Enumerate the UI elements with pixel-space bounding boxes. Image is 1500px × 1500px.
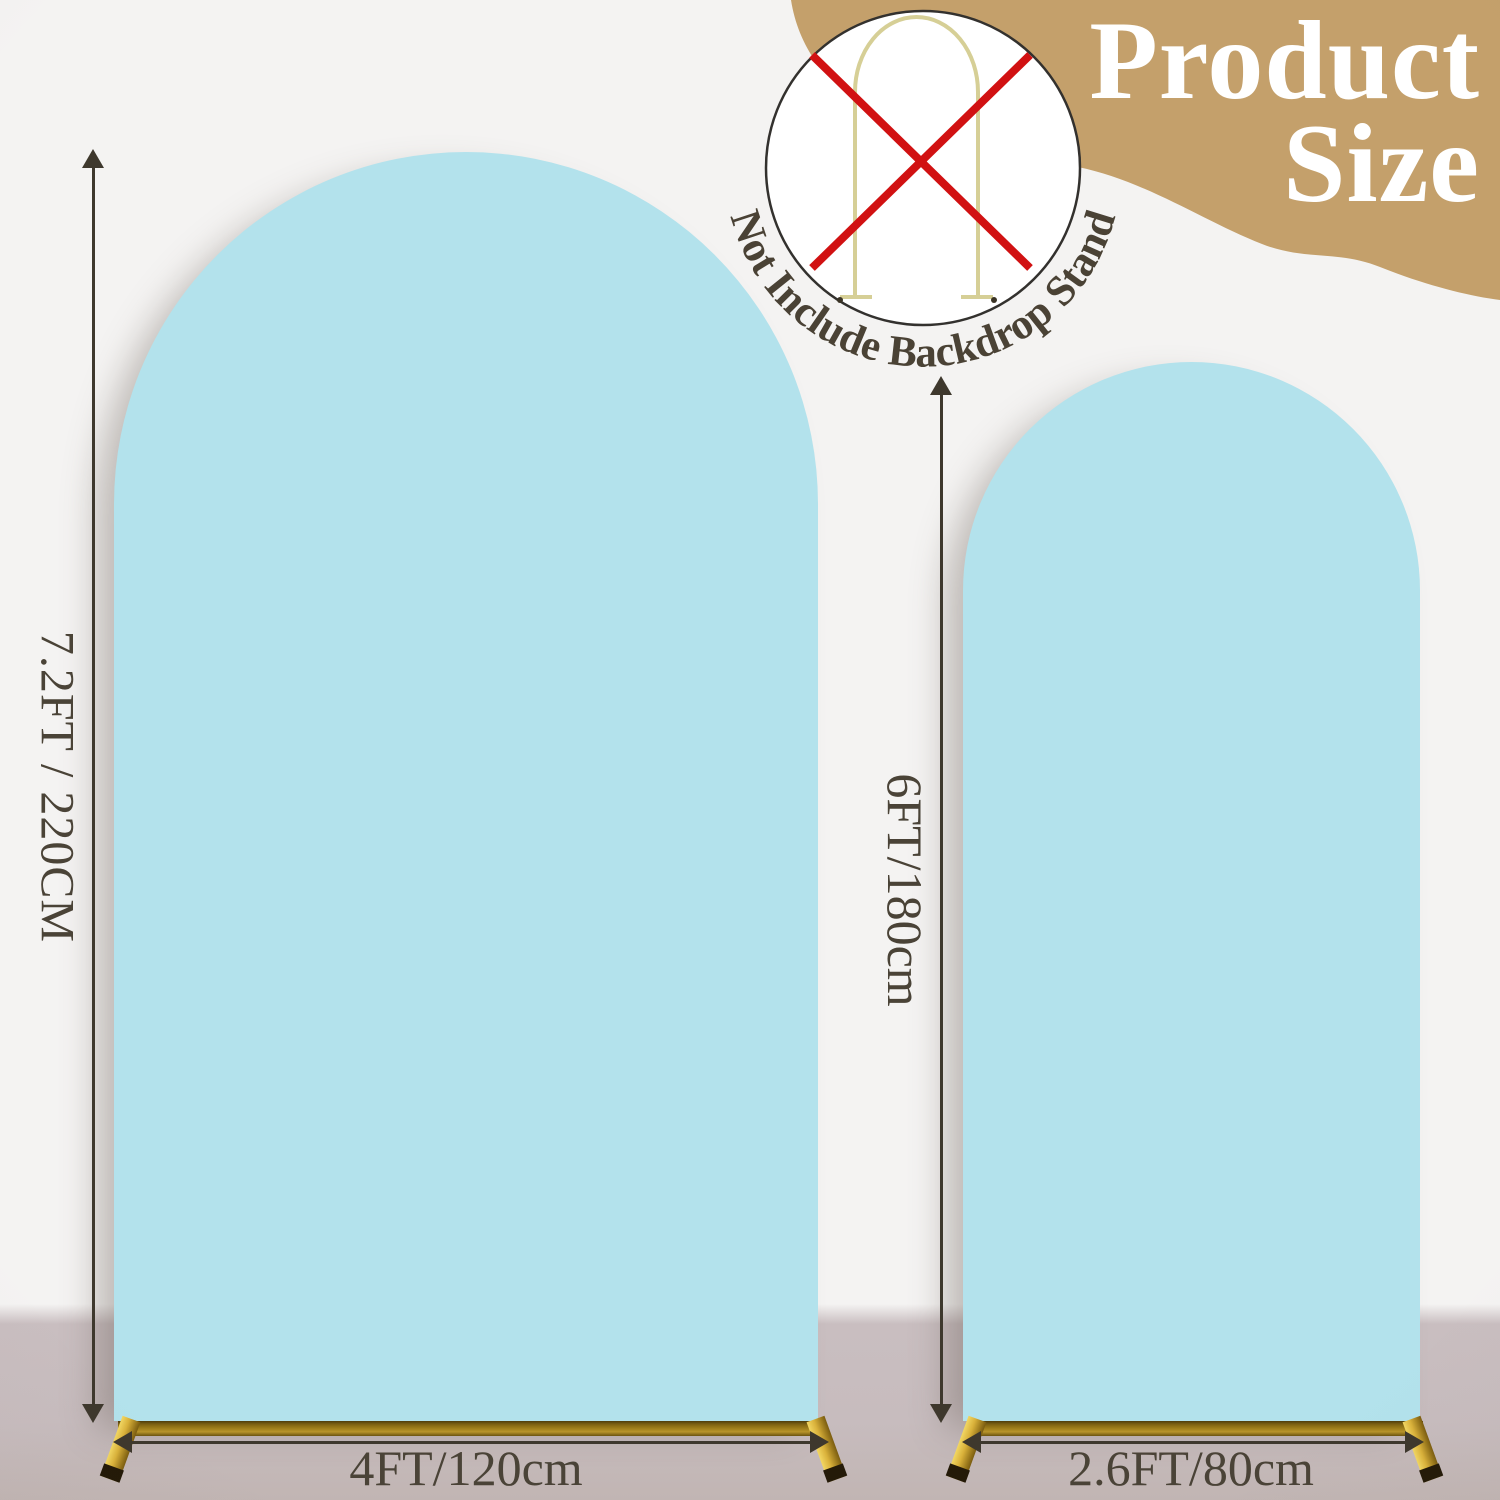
backdrop-cover-large	[114, 152, 818, 1421]
width-label-small: 2.6FT/80cm	[1068, 1439, 1314, 1497]
product-size-infographic: Not Include Backdrop Stand 7.2FT / 220CM…	[0, 0, 1500, 1500]
arrow-right-icon	[810, 1431, 829, 1453]
width-label-large: 4FT/120cm	[349, 1439, 582, 1497]
stand-foot-dot-right	[991, 297, 997, 303]
height-arrow-line-large	[92, 164, 95, 1417]
height-arrow-line-small	[940, 391, 943, 1417]
page-title: Product Size	[1089, 10, 1480, 216]
arrow-down-icon	[82, 1404, 104, 1423]
arrow-down-icon	[930, 1404, 952, 1423]
arrow-left-icon	[962, 1431, 981, 1453]
arrow-right-icon	[1405, 1431, 1424, 1453]
height-label-small: 6FT/180cm	[876, 773, 934, 1006]
stand-foot-dot-left	[837, 297, 843, 303]
title-line-2: Size	[1089, 113, 1480, 216]
stand-base-bar-large	[118, 1421, 824, 1436]
title-line-1: Product	[1089, 10, 1480, 113]
arrow-left-icon	[113, 1431, 132, 1453]
backdrop-cover-small	[963, 362, 1420, 1421]
stand-base-bar-small	[967, 1421, 1423, 1436]
height-label-large: 7.2FT / 220CM	[30, 631, 85, 943]
arrow-up-icon	[82, 149, 104, 168]
arrow-up-icon	[930, 376, 952, 395]
